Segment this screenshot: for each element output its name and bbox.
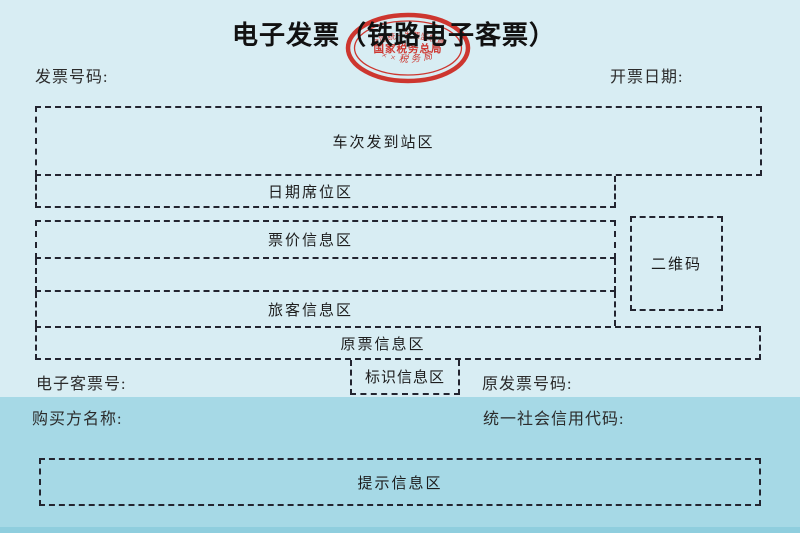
notice-info-zone-label: 提示信息区 — [357, 472, 442, 493]
qr-code-zone: 二维码 — [630, 216, 723, 311]
empty-zone — [35, 259, 616, 292]
identification-info-zone-label: 标识信息区 — [365, 366, 445, 387]
passenger-info-zone-label: 旅客信息区 — [268, 299, 383, 320]
passenger-info-zone: 旅客信息区 — [35, 292, 616, 326]
fare-info-zone-label: 票价信息区 — [268, 229, 383, 250]
identification-info-zone: 标识信息区 — [350, 360, 460, 395]
train-station-zone-label: 车次发到站区 — [332, 131, 464, 152]
bottom-strip — [0, 527, 800, 533]
invoice-template-page: 全国统一发票监制章 国家税务总局 ××税务局 电子发票（铁路电子客票） 发票号码… — [0, 0, 800, 533]
credit-code-label: 统一社会信用代码: — [483, 405, 624, 429]
fare-info-zone: 票价信息区 — [35, 220, 616, 259]
qr-code-zone-label: 二维码 — [651, 253, 702, 274]
buyer-name-label: 购买方名称: — [32, 405, 122, 429]
invoice-number-label: 发票号码: — [35, 63, 108, 87]
train-station-zone: 车次发到站区 — [35, 106, 762, 176]
page-title: 电子发票（铁路电子客票） — [0, 15, 788, 52]
original-ticket-info-zone: 原票信息区 — [35, 326, 761, 360]
eticket-number-label: 电子客票号: — [36, 370, 126, 394]
notice-info-zone: 提示信息区 — [39, 458, 761, 506]
date-seat-zone: 日期席位区 — [35, 176, 616, 208]
issue-date-label: 开票日期: — [610, 63, 683, 87]
original-invoice-number-label: 原发票号码: — [482, 370, 572, 394]
date-seat-zone-label: 日期席位区 — [268, 181, 383, 202]
original-ticket-info-zone-label: 原票信息区 — [108, 333, 689, 354]
